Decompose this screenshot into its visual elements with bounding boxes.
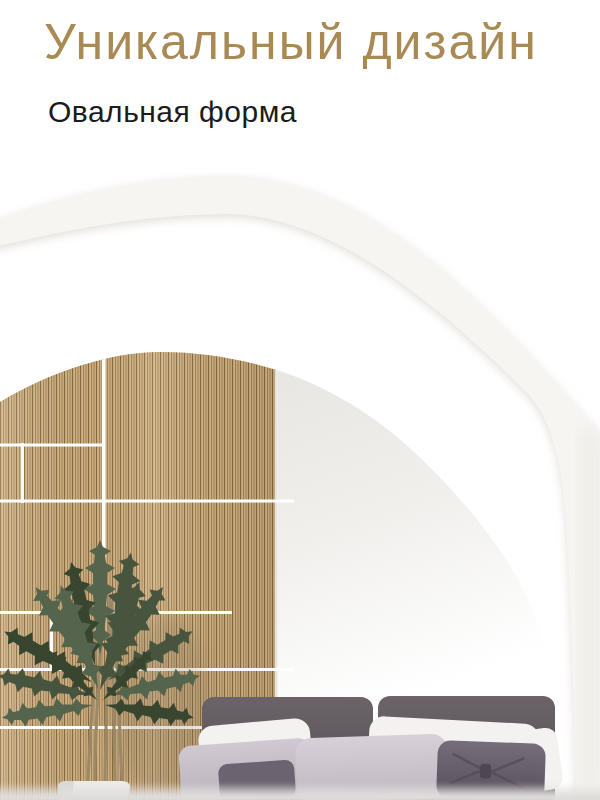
bottom-blur-strip bbox=[0, 783, 600, 800]
page-title: Уникальный дизайн bbox=[44, 16, 538, 68]
frame-side-shading bbox=[583, 430, 596, 790]
product-card: Уникальный дизайн Овальная форма bbox=[0, 0, 600, 800]
page-subtitle: Овальная форма bbox=[48, 95, 297, 129]
